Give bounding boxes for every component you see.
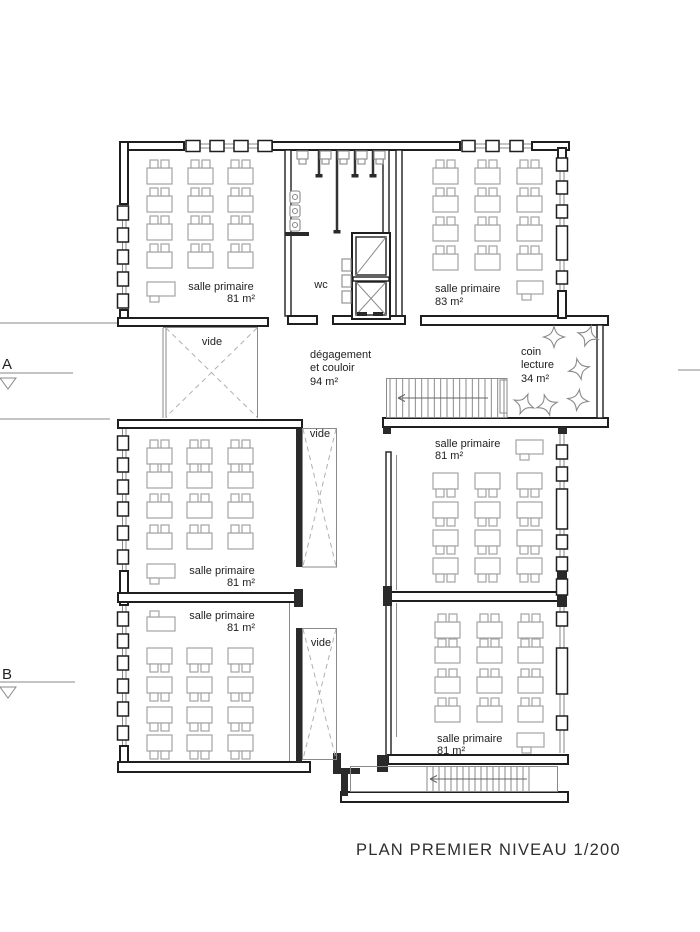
desk — [188, 224, 213, 240]
toilet-icon — [297, 151, 308, 159]
cushion-icon — [544, 327, 565, 348]
chair — [480, 614, 488, 622]
desk — [517, 225, 542, 241]
chair — [520, 546, 528, 554]
desk — [517, 558, 542, 574]
chair — [521, 669, 529, 677]
chair — [489, 518, 497, 526]
room-label-tr: salle primaire — [435, 283, 500, 295]
desk — [475, 254, 500, 270]
chair — [491, 669, 499, 677]
room-salle-primaire-mid-right — [433, 473, 542, 582]
chair — [201, 525, 209, 533]
chair — [478, 489, 486, 497]
chair — [242, 525, 250, 533]
chair — [201, 664, 209, 672]
desk — [518, 647, 543, 663]
desk — [228, 735, 253, 751]
toilet-icon — [299, 159, 306, 164]
chair — [242, 244, 250, 252]
chair — [478, 246, 486, 254]
desk — [187, 533, 212, 549]
room-label-mr: salle primaire — [435, 438, 500, 450]
chair — [520, 160, 528, 168]
section-label-a: A — [2, 356, 12, 373]
room-label-ml: salle primaire — [189, 565, 254, 577]
desk — [475, 196, 500, 212]
vide-upper-label: vide — [202, 336, 222, 348]
desk — [147, 648, 172, 664]
chair — [161, 188, 169, 196]
coin-label-2: lecture — [521, 359, 554, 371]
staircase-upper — [387, 379, 508, 418]
chair — [202, 216, 210, 224]
room-label-tl: salle primaire — [188, 281, 253, 293]
chair — [190, 440, 198, 448]
desk — [433, 473, 458, 489]
toilet-icon — [320, 151, 331, 159]
desk — [228, 648, 253, 664]
desk — [187, 502, 212, 518]
chair — [231, 693, 239, 701]
chair — [161, 440, 169, 448]
chair — [191, 160, 199, 168]
chair — [161, 216, 169, 224]
chair — [436, 217, 444, 225]
chair — [521, 614, 529, 622]
chair — [231, 751, 239, 759]
chair — [478, 574, 486, 582]
desk — [475, 530, 500, 546]
desk — [517, 196, 542, 212]
corridor-area: 94 m² — [310, 376, 338, 388]
chair — [520, 217, 528, 225]
desk — [517, 168, 542, 184]
desk — [477, 677, 502, 693]
desk — [187, 735, 212, 751]
room-area-mr: 81 m² — [435, 450, 463, 462]
toilet-icon — [322, 159, 329, 164]
chair — [489, 489, 497, 497]
sink-icon — [293, 223, 298, 228]
chair — [520, 246, 528, 254]
chair — [491, 698, 499, 706]
desk — [228, 168, 253, 184]
chair — [489, 546, 497, 554]
chair — [191, 244, 199, 252]
chair — [489, 160, 497, 168]
chair — [438, 614, 446, 622]
chair — [201, 693, 209, 701]
room-label-wc: wc — [313, 279, 328, 291]
chair — [231, 464, 239, 472]
chair — [190, 664, 198, 672]
toilet-icon — [340, 159, 347, 164]
chair — [161, 160, 169, 168]
chair — [201, 723, 209, 731]
chair — [531, 217, 539, 225]
coin-area: 34 m² — [521, 373, 549, 385]
chair — [436, 188, 444, 196]
chair — [520, 489, 528, 497]
chair — [201, 494, 209, 502]
chair — [447, 160, 455, 168]
chair — [532, 698, 540, 706]
chair — [190, 464, 198, 472]
desk — [228, 448, 253, 464]
toilet-icon — [338, 151, 349, 159]
desk — [147, 168, 172, 184]
chair — [489, 574, 497, 582]
desk — [518, 622, 543, 638]
desk — [475, 473, 500, 489]
cushion-icon — [566, 388, 590, 412]
chair — [231, 244, 239, 252]
desk — [228, 533, 253, 549]
desk — [518, 706, 543, 722]
vide-mid — [303, 429, 337, 568]
chair — [436, 546, 444, 554]
desk — [433, 502, 458, 518]
desk — [187, 472, 212, 488]
chair — [242, 664, 250, 672]
desk — [228, 707, 253, 723]
chair — [202, 188, 210, 196]
desk — [477, 622, 502, 638]
chair — [521, 698, 529, 706]
chair — [161, 664, 169, 672]
desk — [435, 622, 460, 638]
chair — [531, 518, 539, 526]
chair — [531, 546, 539, 554]
section-label-b: B — [2, 666, 12, 683]
cushion-icon — [510, 390, 537, 417]
chair — [449, 698, 457, 706]
desk — [477, 647, 502, 663]
chair — [447, 246, 455, 254]
corridor-label-2: et couloir — [310, 362, 355, 374]
chair — [150, 525, 158, 533]
chair — [161, 693, 169, 701]
chair — [150, 188, 158, 196]
chair — [531, 160, 539, 168]
desk — [228, 502, 253, 518]
desk — [228, 224, 253, 240]
chair — [520, 188, 528, 196]
chair — [478, 160, 486, 168]
chair — [478, 518, 486, 526]
desk — [147, 472, 172, 488]
desk — [147, 735, 172, 751]
chair — [242, 160, 250, 168]
chair — [478, 217, 486, 225]
desk — [433, 225, 458, 241]
room-area-tl: 81 m² — [227, 293, 255, 305]
chair — [242, 216, 250, 224]
chair — [242, 693, 250, 701]
desk — [517, 530, 542, 546]
drawing-title: PLAN PREMIER NIVEAU 1/200 — [356, 841, 621, 859]
desk — [433, 196, 458, 212]
chair — [489, 246, 497, 254]
floor-plan-canvas: A B salle primaire 81 m² wc salle primai… — [0, 0, 700, 932]
chair — [161, 525, 169, 533]
chair — [150, 440, 158, 448]
chair — [436, 489, 444, 497]
desk — [187, 448, 212, 464]
chair — [231, 440, 239, 448]
reference-lines — [0, 323, 700, 762]
desk — [188, 252, 213, 268]
chair — [521, 639, 529, 647]
cushion-icon — [567, 357, 592, 382]
desk — [147, 224, 172, 240]
chair — [242, 464, 250, 472]
chair — [242, 751, 250, 759]
elevator-shaft — [342, 233, 390, 319]
chair — [191, 188, 199, 196]
desk — [477, 706, 502, 722]
chair — [202, 244, 210, 252]
desk — [228, 196, 253, 212]
chair — [532, 669, 540, 677]
chair — [190, 494, 198, 502]
desk — [433, 530, 458, 546]
room-salle-primaire-bottom-right — [435, 614, 543, 722]
desk — [188, 196, 213, 212]
chair — [489, 217, 497, 225]
desk — [475, 168, 500, 184]
room-salle-primaire-top-left — [147, 160, 253, 268]
desk — [517, 502, 542, 518]
chair — [531, 574, 539, 582]
chair — [447, 188, 455, 196]
desk — [147, 448, 172, 464]
desk — [228, 677, 253, 693]
desk — [475, 225, 500, 241]
chair — [449, 669, 457, 677]
chair — [150, 664, 158, 672]
chair — [150, 244, 158, 252]
chair — [231, 494, 239, 502]
chair — [480, 669, 488, 677]
chair — [161, 723, 169, 731]
chair — [231, 188, 239, 196]
room-area-bl: 81 m² — [227, 622, 255, 634]
floor-plan: A B salle primaire 81 m² wc salle primai… — [0, 0, 700, 932]
room-salle-primaire-mid-left — [147, 440, 253, 549]
chair — [449, 639, 457, 647]
chair — [520, 518, 528, 526]
chair — [201, 440, 209, 448]
room-area-tr: 83 m² — [435, 296, 463, 308]
chair — [161, 464, 169, 472]
chair — [191, 216, 199, 224]
chair — [438, 669, 446, 677]
desk — [228, 252, 253, 268]
desk — [147, 502, 172, 518]
desk — [228, 472, 253, 488]
desk — [435, 706, 460, 722]
chair — [480, 698, 488, 706]
desk — [433, 168, 458, 184]
chair — [150, 464, 158, 472]
vide-lower-label: vide — [311, 637, 331, 649]
chair — [447, 518, 455, 526]
chair — [231, 525, 239, 533]
toilet-icon — [356, 151, 367, 159]
desk — [435, 647, 460, 663]
chair — [478, 546, 486, 554]
chair — [531, 246, 539, 254]
chair — [150, 216, 158, 224]
chair — [150, 693, 158, 701]
chair — [150, 160, 158, 168]
toilet-icon — [374, 151, 385, 159]
chair — [449, 614, 457, 622]
chair — [190, 751, 198, 759]
chair — [231, 160, 239, 168]
desk — [147, 533, 172, 549]
desk — [517, 254, 542, 270]
chair — [242, 440, 250, 448]
desk — [147, 707, 172, 723]
desk — [187, 677, 212, 693]
chair — [532, 614, 540, 622]
chair — [489, 188, 497, 196]
desk — [147, 252, 172, 268]
toilet-icon — [358, 159, 365, 164]
chair — [242, 723, 250, 731]
room-salle-primaire-top-right — [433, 160, 542, 270]
chair — [531, 188, 539, 196]
chair — [201, 464, 209, 472]
chair — [491, 614, 499, 622]
desk — [475, 558, 500, 574]
chair — [190, 525, 198, 533]
toilet-icon — [376, 159, 383, 164]
chair — [231, 664, 239, 672]
chair — [190, 723, 198, 731]
desk — [475, 502, 500, 518]
chair — [436, 574, 444, 582]
desk — [187, 707, 212, 723]
wc-fixtures — [290, 150, 385, 234]
chair — [231, 216, 239, 224]
chair — [447, 217, 455, 225]
chair — [436, 160, 444, 168]
room-area-ml: 81 m² — [227, 577, 255, 589]
chair — [150, 494, 158, 502]
desk — [188, 168, 213, 184]
desk — [147, 677, 172, 693]
chair — [242, 494, 250, 502]
chair — [478, 188, 486, 196]
chair — [438, 639, 446, 647]
desk — [517, 473, 542, 489]
chair — [531, 489, 539, 497]
room-label-bl: salle primaire — [189, 610, 254, 622]
chair — [150, 751, 158, 759]
chair — [436, 518, 444, 526]
chair — [438, 698, 446, 706]
chair — [532, 639, 540, 647]
chair — [161, 494, 169, 502]
vide-mid-label: vide — [310, 428, 330, 440]
chair — [447, 489, 455, 497]
chair — [150, 723, 158, 731]
chair — [436, 246, 444, 254]
chair — [201, 751, 209, 759]
chair — [161, 244, 169, 252]
chair — [202, 160, 210, 168]
desk — [518, 677, 543, 693]
chair — [242, 188, 250, 196]
desk — [433, 254, 458, 270]
chair — [447, 574, 455, 582]
sink-icon — [293, 209, 298, 214]
coin-label-1: coin — [521, 346, 541, 358]
room-label-br: salle primaire — [437, 733, 502, 745]
chair — [520, 574, 528, 582]
room-area-br: 81 m² — [437, 745, 465, 757]
chair — [161, 751, 169, 759]
chair — [447, 546, 455, 554]
room-salle-primaire-bottom-left — [147, 648, 253, 759]
corridor-label-1: dégagement — [310, 349, 371, 361]
chair — [231, 723, 239, 731]
desk — [433, 558, 458, 574]
chair — [491, 639, 499, 647]
chair — [480, 639, 488, 647]
desk — [435, 677, 460, 693]
chair — [190, 693, 198, 701]
desk — [147, 196, 172, 212]
cushion-icon — [534, 392, 560, 418]
desk — [187, 648, 212, 664]
sink-icon — [293, 195, 298, 200]
